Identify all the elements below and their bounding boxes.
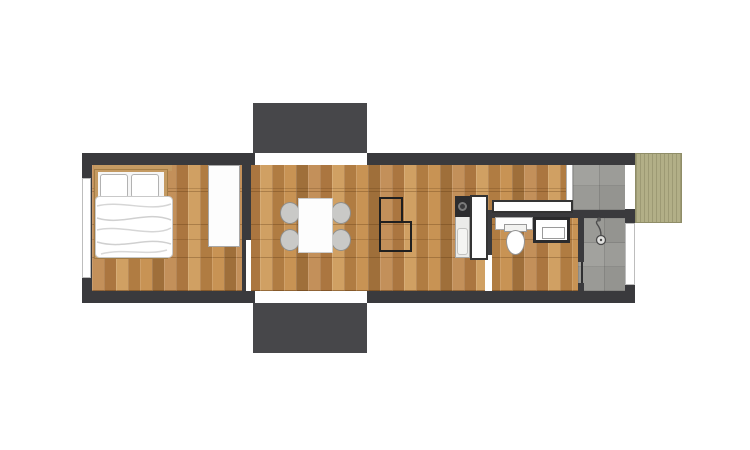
kitchen-sink — [457, 228, 468, 255]
cooktop-burner — [458, 202, 467, 211]
wall-bottom-right — [367, 291, 635, 303]
wardrobe — [208, 165, 240, 247]
wall-shower-divider — [578, 218, 584, 262]
bottom-porch-opening — [255, 291, 367, 303]
shower-door-leaf — [581, 262, 583, 284]
bed-pillow-right — [131, 174, 159, 198]
dining-table — [298, 198, 333, 253]
stair-outline-upper — [379, 197, 403, 223]
wall-bedroom-divider — [242, 165, 251, 240]
side-deck — [635, 153, 682, 223]
shower-window — [625, 223, 635, 285]
kitchen-counter — [470, 195, 488, 260]
floor-plan — [0, 0, 750, 450]
dining-chair-2 — [280, 229, 300, 251]
bathroom-door-opening — [485, 255, 492, 291]
stair-outline-lower — [379, 221, 412, 252]
washbasin-unit — [533, 217, 570, 243]
wall-bottom-left — [82, 291, 255, 303]
top-porch-opening — [255, 153, 367, 165]
top-porch — [253, 103, 367, 154]
washbasin-bowl — [542, 227, 565, 239]
bedroom-door-opening — [246, 240, 251, 291]
bedroom-window — [82, 178, 91, 278]
shower-head-icon — [588, 213, 614, 247]
kitchen-wall-counter — [492, 200, 573, 213]
dining-chair-4 — [331, 229, 351, 251]
bed-pillow-left — [100, 174, 128, 198]
wall-top-left — [82, 153, 255, 165]
wall-shower-stub — [578, 283, 584, 291]
bed-duvet — [95, 196, 173, 258]
deck-door-opening — [625, 165, 635, 209]
dining-chair-3 — [331, 202, 351, 224]
entry-vestibule-floor — [573, 165, 625, 210]
bottom-porch — [253, 303, 367, 353]
dining-chair-1 — [280, 202, 300, 224]
wall-top-right — [367, 153, 635, 165]
